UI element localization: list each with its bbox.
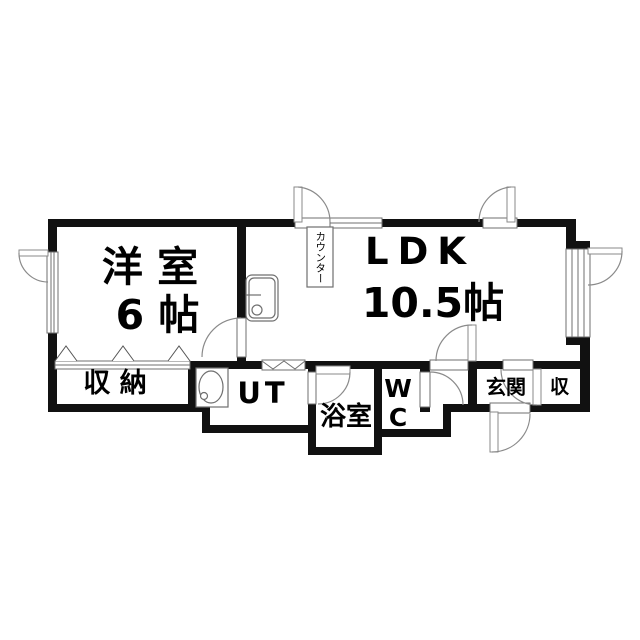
- shoe-cabinet-label: 収: [541, 378, 578, 398]
- kitchen-sink: [246, 275, 278, 321]
- left-window-arc: [19, 253, 48, 282]
- counter-label: カウンター: [308, 230, 332, 285]
- closet-triangle-3: [168, 346, 190, 361]
- top-door1-arc: [298, 187, 330, 222]
- floorplan-canvas: 洋 室 6 帖 LDK 10.5帖 収 納 UT 浴室 WC 玄関 収 カウンタ…: [0, 0, 640, 640]
- western-room-label: 洋 室: [85, 246, 215, 289]
- ldk-hall-threshold: [430, 360, 468, 370]
- left-window-leaf: [19, 250, 48, 256]
- balcony-door-frame: [566, 249, 590, 337]
- closet-triangle-2: [112, 346, 134, 361]
- top-door1-leaf: [294, 187, 302, 222]
- washbasin: [196, 368, 228, 407]
- entry-door-leaf: [490, 412, 498, 452]
- wall-bottom-ut: [202, 425, 312, 433]
- closet-triangle-1: [55, 346, 77, 361]
- ldk-size: 10.5帖: [357, 282, 509, 325]
- western-room-size: 6 帖: [90, 294, 225, 337]
- wc-door-frame: [420, 372, 430, 407]
- bath-door-frame: [308, 372, 316, 404]
- bathroom-label: 浴室: [314, 404, 378, 431]
- balcony-door-leaf: [588, 248, 622, 254]
- wall-right-jut-top: [566, 241, 590, 249]
- left-window: [47, 252, 58, 333]
- ldk-label: LDK: [352, 233, 488, 272]
- top-door2-leaf: [507, 187, 515, 222]
- ldk-hall-door-leaf: [468, 325, 476, 361]
- top-door2-arc: [479, 187, 511, 222]
- wc-door-arc: [430, 372, 463, 405]
- closet-triangles: [55, 346, 190, 361]
- ldk-hall-door-arc: [436, 325, 472, 361]
- top-window: [330, 218, 382, 228]
- accordion-door: [262, 360, 305, 370]
- wall-genkan-left: [468, 369, 477, 404]
- bath-door-arc: [318, 372, 350, 404]
- wall-bottom-closet: [48, 404, 210, 412]
- toilet-label: WC: [384, 372, 412, 434]
- bath-door-leaf: [316, 366, 350, 374]
- wall-right-lower: [580, 337, 590, 412]
- entrance-label: 玄関: [477, 377, 535, 398]
- utility-label: UT: [230, 378, 296, 408]
- wall-bath-bottom: [308, 447, 382, 455]
- balcony-door-arc: [588, 251, 622, 285]
- wall-hall-bottom: [443, 404, 490, 412]
- bedroom-door-frame: [237, 318, 246, 357]
- closet-label: 収 納: [56, 370, 174, 398]
- ldk-genkan-threshold: [503, 360, 533, 370]
